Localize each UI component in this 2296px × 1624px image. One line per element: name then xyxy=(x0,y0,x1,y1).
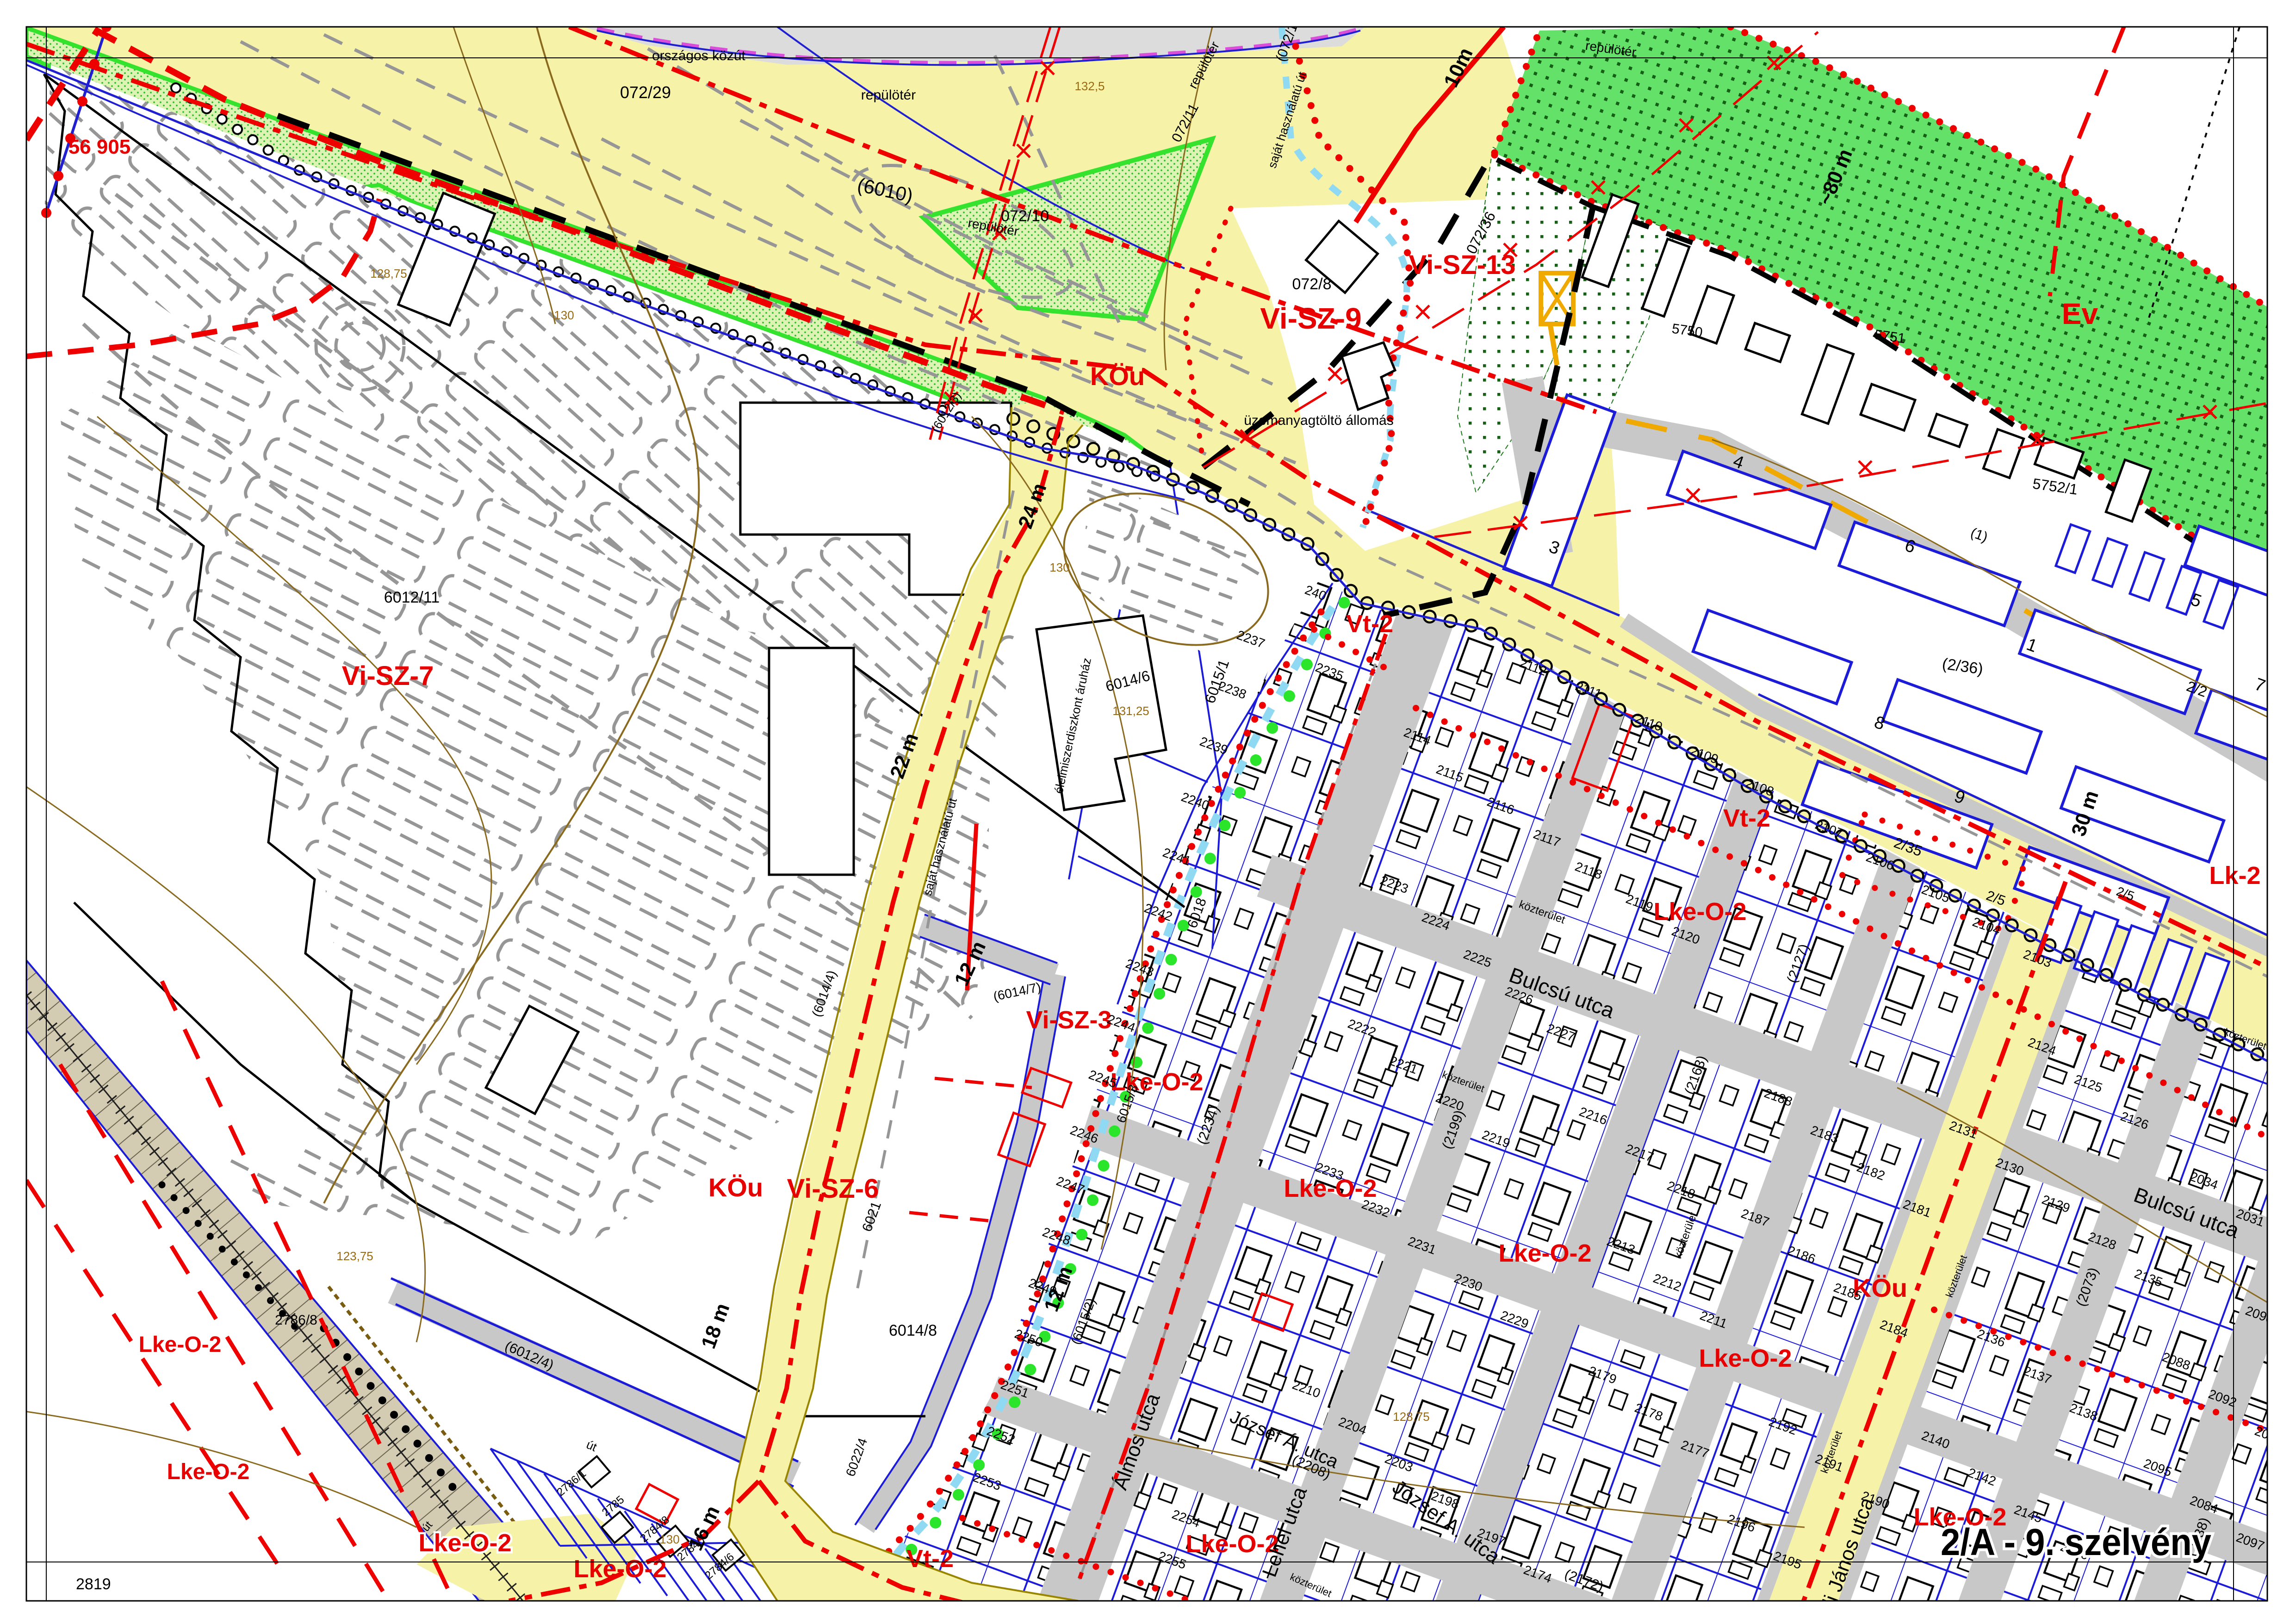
svg-text:128,75: 128,75 xyxy=(1393,1410,1430,1424)
svg-text:6014/8: 6014/8 xyxy=(889,1322,937,1339)
svg-text:repülötér: repülötér xyxy=(861,87,916,103)
svg-text:072/29: 072/29 xyxy=(620,83,671,102)
svg-text:072/8: 072/8 xyxy=(1292,275,1331,293)
svg-text:Ev: Ev xyxy=(2062,297,2098,330)
svg-text:Lke-O-2: Lke-O-2 xyxy=(139,1332,222,1357)
svg-text:072/10: 072/10 xyxy=(1001,207,1049,225)
svg-text:Vi-SZ-6: Vi-SZ-6 xyxy=(787,1174,879,1204)
svg-text:Lke-O-2: Lke-O-2 xyxy=(1653,898,1746,926)
svg-text:Lke-O-2: Lke-O-2 xyxy=(418,1529,511,1557)
svg-text:132,5: 132,5 xyxy=(1074,79,1105,93)
svg-text:Lk-2: Lk-2 xyxy=(2209,862,2260,890)
svg-text:2/A - 9. szelvény: 2/A - 9. szelvény xyxy=(1941,1521,2211,1563)
svg-text:Lke-O-2: Lke-O-2 xyxy=(1699,1344,1792,1372)
svg-text:Vt-2: Vt-2 xyxy=(1346,610,1393,638)
svg-text:Vi-SZ-7: Vi-SZ-7 xyxy=(342,661,434,691)
svg-text:KÖu: KÖu xyxy=(708,1173,763,1202)
svg-text:KÖu: KÖu xyxy=(1090,361,1145,391)
svg-text:6012/11: 6012/11 xyxy=(384,589,440,606)
svg-text:130: 130 xyxy=(659,1532,679,1546)
svg-text:Vi-SZ-3: Vi-SZ-3 xyxy=(1026,1006,1111,1034)
svg-text:2819: 2819 xyxy=(76,1575,111,1593)
svg-text:üzemanyagtöltö állomás: üzemanyagtöltö állomás xyxy=(1244,413,1394,428)
svg-text:Vi-SZ-9: Vi-SZ-9 xyxy=(1260,302,1361,335)
svg-text:128,75: 128,75 xyxy=(370,267,407,280)
svg-text:Vi-SZ-13: Vi-SZ-13 xyxy=(1409,250,1515,280)
svg-text:Lke-O-2: Lke-O-2 xyxy=(573,1555,666,1583)
svg-text:2786/8: 2786/8 xyxy=(275,1313,317,1328)
svg-text:123,75: 123,75 xyxy=(336,1249,373,1263)
svg-text:130: 130 xyxy=(1049,560,1069,574)
svg-text:Vt-2: Vt-2 xyxy=(1723,804,1770,832)
svg-text:Vt-2: Vt-2 xyxy=(906,1545,954,1573)
svg-text:országos közút: országos közút xyxy=(652,48,745,63)
svg-text:56 905: 56 905 xyxy=(68,136,131,158)
svg-text:Lke-O-2: Lke-O-2 xyxy=(167,1460,250,1484)
svg-text:KÖu: KÖu xyxy=(1853,1273,1907,1302)
svg-text:130: 130 xyxy=(554,308,574,322)
svg-text:131,25: 131,25 xyxy=(1112,704,1149,718)
svg-text:Lke-O-2: Lke-O-2 xyxy=(1498,1239,1591,1267)
